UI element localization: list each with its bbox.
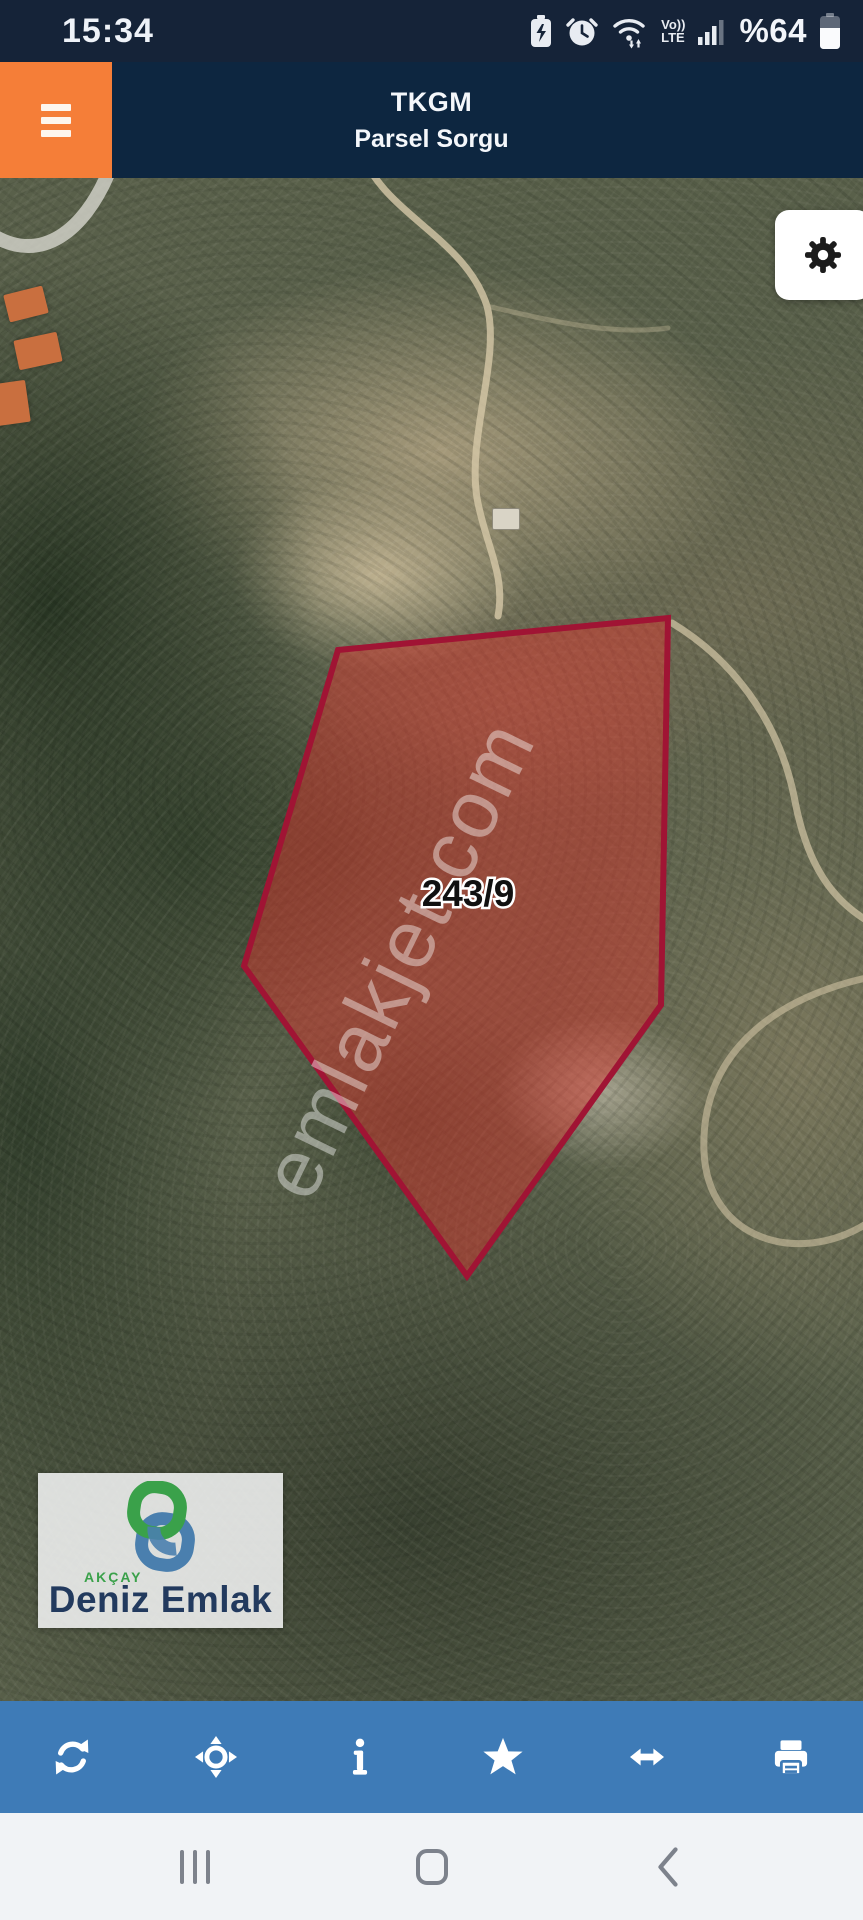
measure-button[interactable] <box>575 1701 719 1813</box>
battery-percent-text: %64 <box>739 12 807 50</box>
locate-icon <box>195 1736 237 1778</box>
signal-icon <box>697 15 727 47</box>
back-icon <box>655 1847 681 1887</box>
home-icon <box>416 1849 448 1885</box>
status-bar: 15:34 Vo)) LTE <box>0 0 863 62</box>
android-nav-bar <box>0 1813 863 1920</box>
back-button[interactable] <box>633 1832 703 1902</box>
app-header: TKGM Parsel Sorgu <box>0 62 863 178</box>
page-title: TKGM Parsel Sorgu <box>0 62 863 178</box>
settings-button[interactable] <box>775 210 863 300</box>
gear-icon <box>800 232 846 278</box>
refresh-icon <box>52 1737 92 1777</box>
refresh-button[interactable] <box>0 1701 144 1813</box>
menu-button[interactable] <box>0 62 112 178</box>
volte-icon: Vo)) LTE <box>661 18 685 44</box>
home-button[interactable] <box>397 1832 467 1902</box>
agency-logo-card: AKÇAY Deniz Emlak <box>38 1473 283 1628</box>
map-toolbar <box>0 1701 863 1813</box>
clock-text: 15:34 <box>22 12 154 51</box>
brand-name-label: Deniz Emlak <box>38 1579 283 1621</box>
recents-icon <box>180 1850 210 1884</box>
info-icon <box>343 1737 377 1777</box>
print-button[interactable] <box>719 1701 863 1813</box>
measure-horizontal-icon <box>625 1740 669 1774</box>
battery-icon <box>819 13 841 49</box>
favorite-star-icon <box>480 1735 526 1779</box>
recents-button[interactable] <box>160 1832 230 1902</box>
info-button[interactable] <box>288 1701 432 1813</box>
alarm-icon <box>565 14 599 48</box>
village-road <box>0 178 108 246</box>
wifi-icon <box>611 13 649 49</box>
battery-saver-icon <box>529 14 553 48</box>
phone-screen: 15:34 Vo)) LTE <box>0 0 863 1920</box>
satellite-map[interactable]: emlakjet.com 243/9 <box>0 178 863 1701</box>
interlocked-rings-icon <box>106 1481 216 1577</box>
parcel-label: 243/9 <box>422 873 515 914</box>
hamburger-icon <box>41 104 71 137</box>
status-icons: Vo)) LTE %64 <box>529 12 841 50</box>
print-icon <box>770 1736 812 1778</box>
locate-button[interactable] <box>144 1701 288 1813</box>
favorite-button[interactable] <box>431 1701 575 1813</box>
